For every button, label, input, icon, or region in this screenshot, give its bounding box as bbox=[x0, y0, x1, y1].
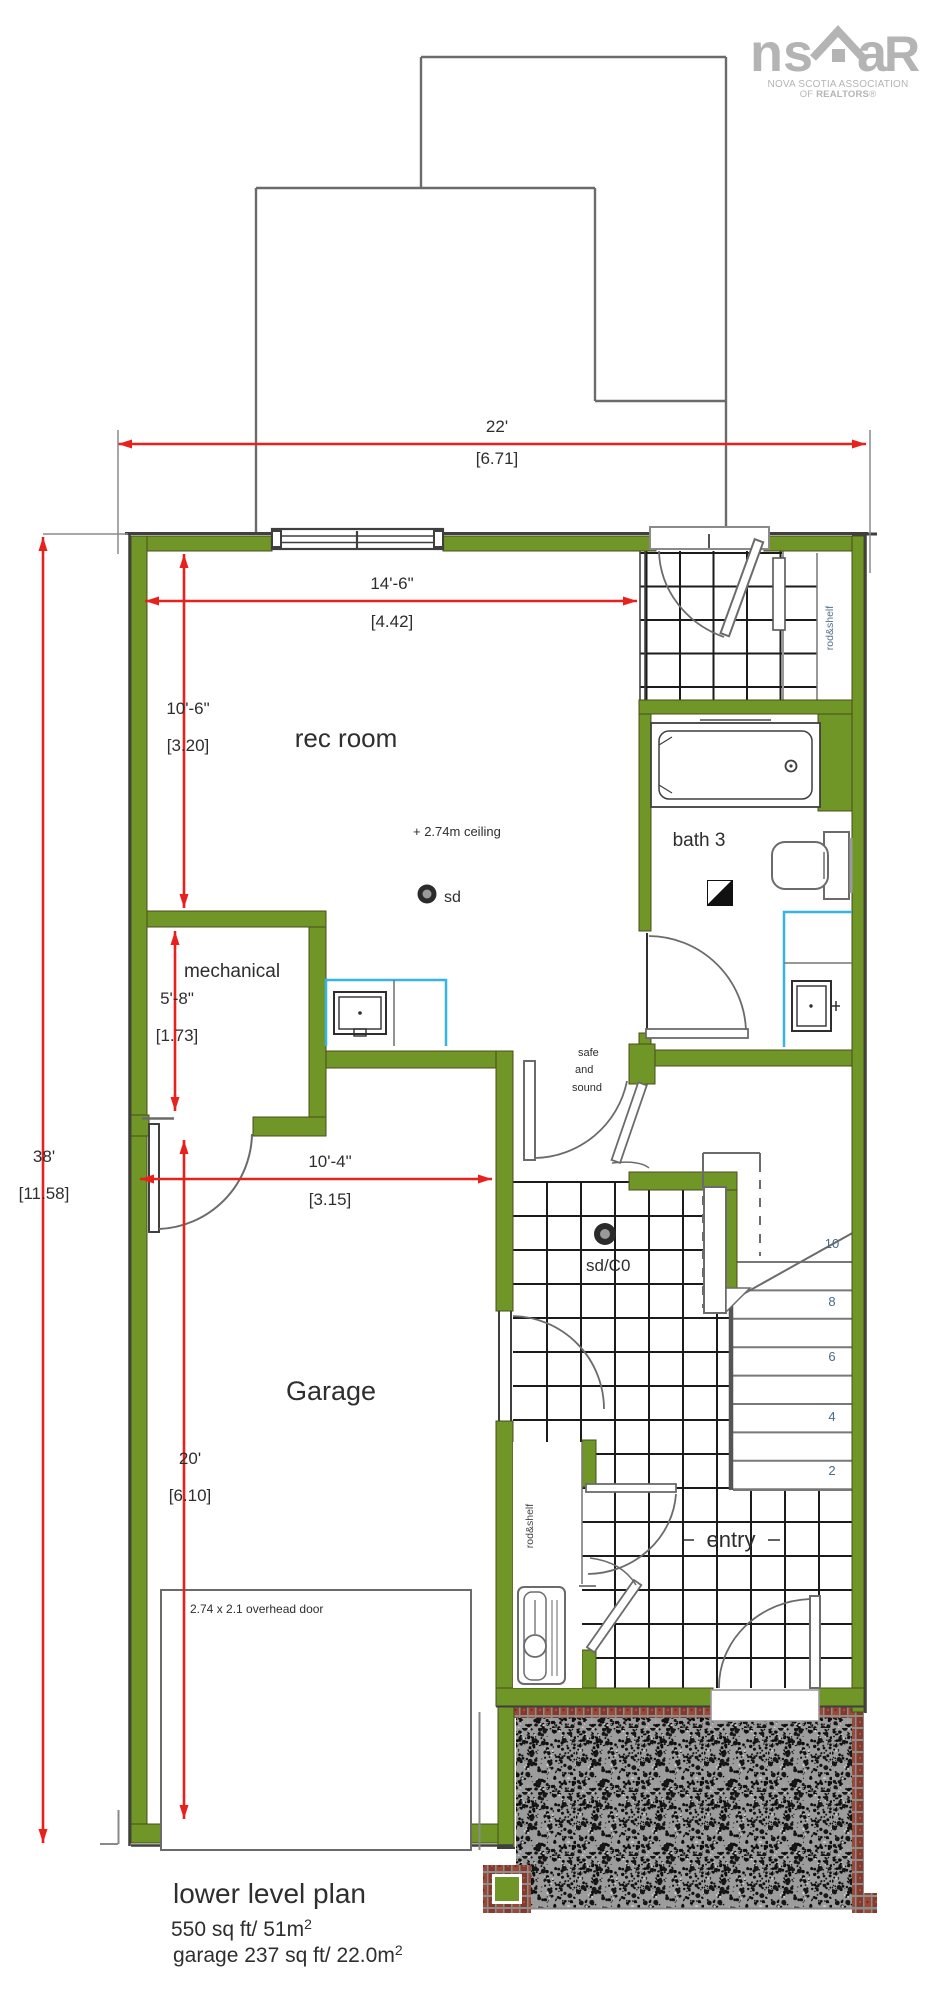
svg-text:5'-8": 5'-8" bbox=[160, 989, 194, 1008]
svg-text:8: 8 bbox=[828, 1294, 835, 1309]
svg-text:R: R bbox=[884, 26, 920, 82]
svg-text:bath 3: bath 3 bbox=[673, 830, 726, 851]
svg-text:sound: sound bbox=[572, 1082, 602, 1094]
svg-text:garage 237 sq ft/ 22.0m2: garage 237 sq ft/ 22.0m2 bbox=[173, 1942, 403, 1967]
svg-text:safe: safe bbox=[578, 1047, 599, 1059]
svg-text:+ 2.74m ceiling: + 2.74m ceiling bbox=[413, 824, 501, 839]
svg-text:ns: ns bbox=[750, 23, 813, 83]
svg-text:22': 22' bbox=[486, 417, 508, 436]
svg-text:sd: sd bbox=[444, 889, 461, 906]
svg-text:lower level plan: lower level plan bbox=[173, 1878, 366, 1909]
svg-text:[11.58]: [11.58] bbox=[19, 1184, 70, 1203]
svg-text:[3.20]: [3.20] bbox=[167, 736, 210, 755]
svg-text:6: 6 bbox=[828, 1349, 835, 1364]
svg-text:[3.15]: [3.15] bbox=[309, 1190, 352, 1209]
svg-text:rod&shelf: rod&shelf bbox=[524, 1504, 536, 1548]
svg-text:10: 10 bbox=[825, 1236, 839, 1251]
svg-text:4: 4 bbox=[828, 1409, 835, 1424]
svg-text:14'-6": 14'-6" bbox=[370, 574, 413, 593]
svg-text:rec room: rec room bbox=[295, 723, 398, 753]
svg-text:sd/C0: sd/C0 bbox=[586, 1256, 630, 1275]
svg-text:and: and bbox=[575, 1064, 593, 1076]
svg-text:[1.73]: [1.73] bbox=[156, 1026, 199, 1045]
svg-text:550 sq ft/ 51m2: 550 sq ft/ 51m2 bbox=[171, 1916, 312, 1941]
svg-text:20': 20' bbox=[179, 1449, 201, 1468]
svg-text:[6.71]: [6.71] bbox=[476, 449, 519, 468]
svg-text:mechanical: mechanical bbox=[184, 961, 280, 982]
svg-text:10'-4": 10'-4" bbox=[308, 1152, 351, 1171]
svg-text:2: 2 bbox=[828, 1463, 835, 1478]
svg-text:[6.10]: [6.10] bbox=[169, 1486, 212, 1505]
svg-text:entry: entry bbox=[707, 1527, 756, 1552]
svg-text:[4.42]: [4.42] bbox=[371, 612, 414, 631]
svg-text:38': 38' bbox=[33, 1147, 55, 1166]
svg-text:2.74 x 2.1 overhead door: 2.74 x 2.1 overhead door bbox=[190, 1602, 323, 1616]
svg-text:Garage: Garage bbox=[286, 1376, 376, 1406]
svg-text:OF REALTORS®: OF REALTORS® bbox=[800, 89, 877, 100]
svg-text:rod&shelf: rod&shelf bbox=[824, 606, 836, 650]
svg-text:10'-6": 10'-6" bbox=[166, 699, 209, 718]
